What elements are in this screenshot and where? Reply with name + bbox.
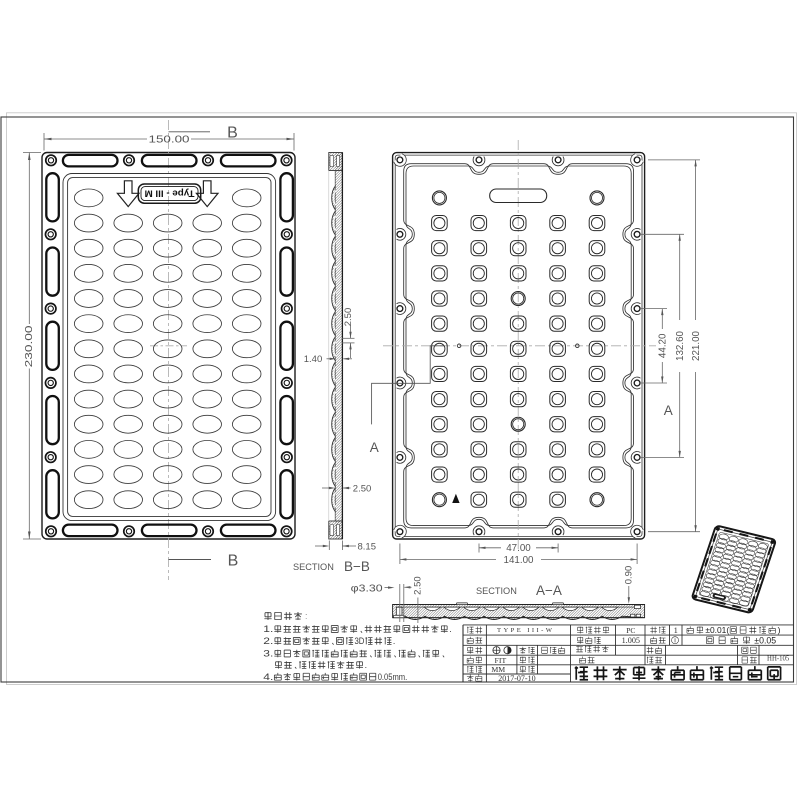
svg-text:1.005: 1.005 [622,636,640,645]
svg-text:±0.05: ±0.05 [754,635,776,645]
svg-text:.: . [393,636,395,646]
svg-text:B: B [228,553,239,570]
svg-text:8.15: 8.15 [358,542,377,553]
svg-text:φ3.30: φ3.30 [351,584,384,595]
svg-text:SECTION: SECTION [476,586,517,596]
svg-text:HH-105: HH-105 [767,656,790,663]
svg-text:2.50: 2.50 [343,308,354,327]
svg-text:A: A [664,403,673,418]
svg-text:3.: 3. [263,649,273,659]
svg-text:150.00: 150.00 [149,134,190,146]
svg-text:4.: 4. [263,672,273,682]
svg-text:1.: 1. [263,624,273,634]
svg-text:1: 1 [674,625,678,635]
svg-text:141.00: 141.00 [504,555,535,566]
svg-text:B−B: B−B [344,559,370,574]
svg-text:2.: 2. [263,636,273,646]
svg-text:.: . [365,660,367,670]
svg-text:221.00: 221.00 [691,330,702,361]
svg-text:47.00: 47.00 [506,543,531,554]
svg-text:3D: 3D [354,636,364,646]
svg-text:2017-07-10: 2017-07-10 [498,674,535,683]
svg-text:±0.01(: ±0.01( [705,625,729,635]
svg-text:SECTION: SECTION [293,562,334,572]
svg-text:2.50: 2.50 [353,483,372,494]
svg-text:PC: PC [626,626,635,635]
svg-text:Type - III M: Type - III M [145,188,195,198]
svg-text:0.90: 0.90 [624,566,635,585]
svg-text:A−A: A−A [536,583,562,598]
svg-text:1.40: 1.40 [304,354,323,365]
svg-text:230.00: 230.00 [23,325,35,367]
svg-text:0.05mm.: 0.05mm. [378,672,408,682]
svg-text:A: A [370,440,379,455]
svg-text:FIT: FIT [495,656,507,665]
svg-text:2.50: 2.50 [413,576,424,595]
svg-text:132.60: 132.60 [675,330,686,361]
svg-text:): ) [778,625,781,635]
svg-text:44.20: 44.20 [658,333,669,358]
svg-text:B: B [227,125,238,142]
svg-text:.: . [449,624,451,634]
